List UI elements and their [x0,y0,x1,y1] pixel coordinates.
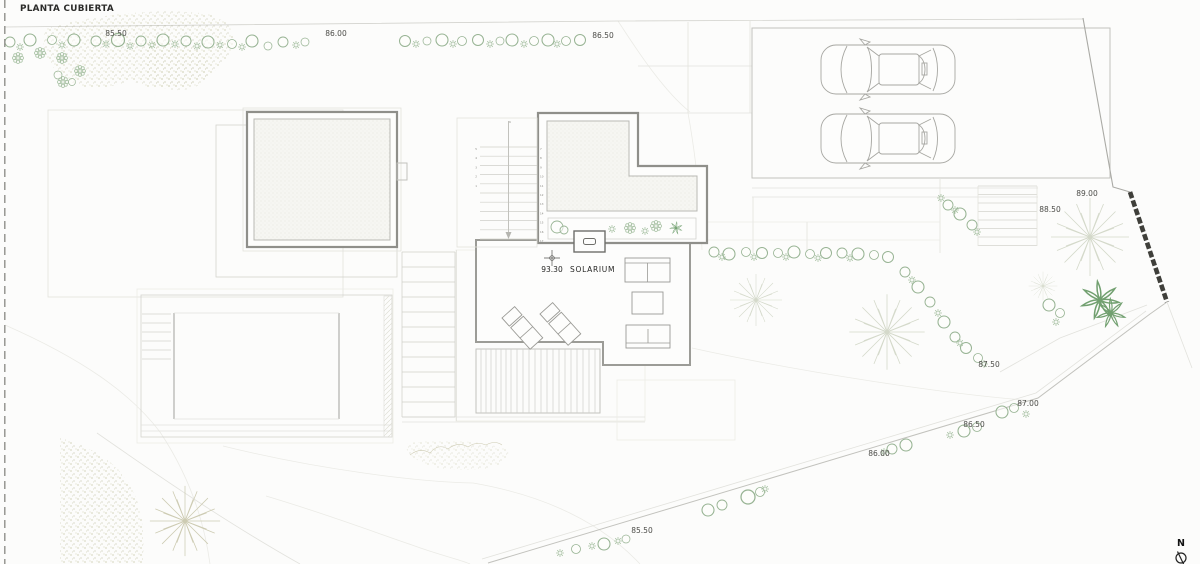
shrub-icon [925,297,935,307]
stair-number: 6 [509,120,511,124]
shrub-icon [709,247,719,257]
shrub-icon [575,35,586,46]
shrub-icon [228,40,237,49]
shrub-icon [723,248,735,260]
roof-hatch [574,231,605,252]
shrub-icon [278,37,288,47]
shrub-icon [54,71,62,79]
shrub-icon [870,251,879,260]
elevation-label: 87.00 [1017,399,1039,408]
shrub-icon [400,36,411,47]
shrub-icon [717,500,727,510]
car-2 [821,108,955,169]
elevation-label: 85.50 [631,526,653,535]
stair-number: 11 [540,184,544,188]
shrub-icon [458,37,467,46]
stair-number: 9 [540,165,542,169]
shrub-icon [496,37,504,45]
elevation-label: 86.50 [963,420,985,429]
stair-number: 12 [540,193,544,197]
shrub-icon [900,439,912,451]
elevation-label: 86.00 [868,449,890,458]
shrub-icon [181,36,191,46]
shrub-icon [757,248,768,259]
shrub-icon [136,36,146,46]
shrub-icon [996,406,1008,418]
stair-number: 13 [540,202,544,206]
shrub-icon [912,281,924,293]
shrub-icon [742,248,751,257]
stair-number: 16 [540,230,544,234]
shrub-icon [473,35,484,46]
shrub-icon [436,34,448,46]
shrub-icon [806,250,815,259]
shrub-icon [598,538,610,550]
shrub-icon [91,36,101,46]
shrub-icon [423,37,431,45]
shrub-icon [530,37,539,46]
shrub-icon [301,38,309,46]
architectural-plan-page: 93.30 SOLARIUM [0,0,1200,564]
car-1 [821,39,955,100]
shrub-icon [157,34,169,46]
shrub-icon [506,34,518,46]
stair-number: 7 [540,147,542,151]
elevation-label: 89.00 [1076,189,1098,198]
stair-number: 3 [475,165,477,169]
shrub-icon [5,37,15,47]
stair-number: 4 [475,156,477,160]
site-plan-drawing: 93.30 SOLARIUM [0,0,1200,564]
shrub-icon [900,267,910,277]
shrub-icon [938,316,950,328]
stair-number: 5 [475,147,477,151]
coffee-table [632,292,663,314]
main-roof-square [247,112,407,247]
shrub-icon [562,37,571,46]
shrub-icon [961,343,972,354]
shrub-icon [774,249,783,258]
stair-number: 17 [540,239,544,243]
shrub-icon [24,34,36,46]
shrub-icon [950,332,960,342]
shrub-icon [264,42,272,50]
shrub-icon [68,34,80,46]
stair-number: 10 [540,175,544,179]
shrub-icon [837,248,847,258]
shrub-icon [943,200,953,210]
shrub-icon [967,220,977,230]
shrub-icon [883,252,894,263]
elevation-label: 87.50 [978,360,1000,369]
shrub-icon [788,246,800,258]
shrub-icon [954,208,966,220]
elevation-label: 86.00 [325,29,347,38]
shrub-icon [542,34,554,46]
stair-number: 2 [475,175,477,179]
stair-number: 15 [540,221,544,225]
elevation-label: 86.50 [592,31,614,40]
shrub-icon [572,545,581,554]
shrub-icon [202,36,214,48]
elevation-label: 85.50 [105,29,127,38]
shrub-icon [48,36,57,45]
page-title: PLANTA CUBIERTA [20,4,114,14]
solarium-level-label: 93.30 [541,265,563,274]
roof-gravel-area [254,119,390,240]
shrub-icon [622,535,630,543]
north-label: N [1177,538,1185,549]
shrub-icon [821,248,832,259]
solarium-name-label: SOLARIUM [570,265,615,274]
shrub-icon [702,504,714,516]
stair-number: 14 [540,211,544,215]
shrub-icon [1056,309,1065,318]
hedge-strip [384,296,392,437]
shrub-icon [741,490,755,504]
shrub-icon [1043,299,1055,311]
stair-number: 1 [475,184,477,188]
shrub-icon [69,79,76,86]
elevation-label: 88.50 [1039,205,1061,214]
stair-number: 8 [540,156,542,160]
shrub-icon [246,35,258,47]
